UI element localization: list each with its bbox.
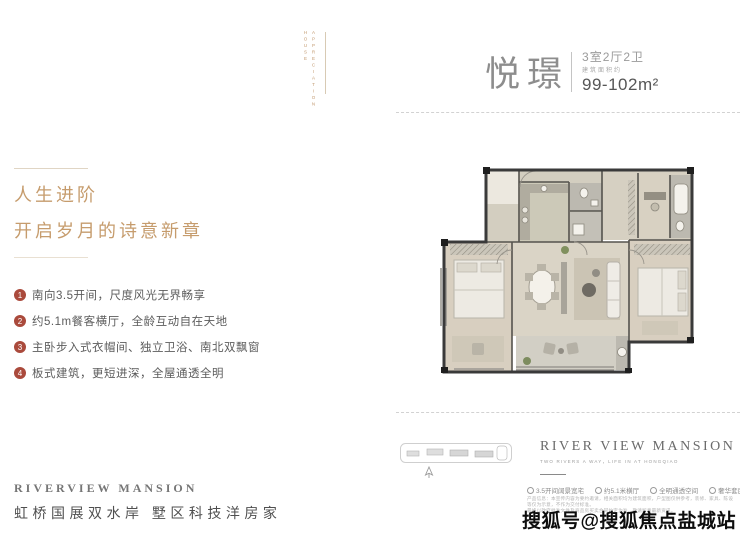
brand-slogan-cn: 虹桥国展双水岸 墅区科技洋房家 (14, 503, 281, 523)
unit-area: 99-102m² (582, 76, 659, 93)
feature-number-badge: 1 (14, 289, 26, 301)
brand-underline (540, 474, 566, 475)
legend-item: 奢华套房主卧 (709, 485, 740, 495)
legend-item: 全明通透空间 (650, 485, 698, 495)
legend-circle-icon (650, 487, 657, 494)
legend-label: 奢华套房主卧 (718, 485, 740, 495)
dashed-separator-top (396, 112, 740, 113)
poster-page: HOUSE APPRECIATION 悦璟 3室2厅2卫 建筑面积约 99-10… (0, 0, 740, 542)
brand-block-right: RIVER VIEW MANSION TWO RIVERS A WAY，LIFE… (540, 439, 735, 475)
floor-plan-svg (424, 140, 724, 402)
legend-circle-icon (595, 487, 602, 494)
legend-label: 全明通透空间 (659, 485, 698, 495)
legend-circle-icon (709, 487, 716, 494)
feature-item: 2 约5.1m餐客横厅，全龄互动自在天地 (14, 314, 260, 328)
feature-item: 3 主卧步入式衣帽间、独立卫浴、南北双飘窗 (14, 340, 260, 354)
selling-points-legend: 3.5开间阔景宽宅 约5.1米横厅 全明通透空间 奢华套房主卧 (527, 485, 740, 495)
intro-bottom-rule (14, 257, 88, 258)
dashed-separator-bottom (396, 412, 740, 413)
watermark-text: 搜狐号@搜狐焦点盐城站 (522, 506, 736, 533)
ornament-text-2: APPRECIATION (311, 30, 316, 96)
ornament-divider-line (325, 32, 326, 94)
feature-text: 南向3.5开间，尺度风光无界畅享 (32, 287, 206, 303)
feature-number-badge: 2 (14, 315, 26, 327)
feature-text: 板式建筑，更短进深，全屋通透全明 (32, 365, 224, 381)
header-divider (571, 52, 572, 92)
area-prefix: 建筑面积约 (582, 68, 659, 74)
brand-name-en-left: RIVERVIEW MANSION (14, 481, 281, 496)
unit-specs: 3室2厅2卫 建筑面积约 99-102m² (582, 51, 659, 93)
legend-label: 约5.1米横厅 (604, 485, 639, 495)
site-plan-icon (400, 443, 512, 463)
legend-item: 3.5开间阔景宽宅 (527, 485, 584, 495)
intro-line-1: 人生进阶 (14, 181, 203, 207)
unit-header: 悦璟 3室2厅2卫 建筑面积约 99-102m² (485, 46, 659, 97)
site-plan-box (400, 443, 512, 468)
feature-item: 4 板式建筑，更短进深，全屋通透全明 (14, 366, 260, 380)
legend-label: 3.5开间阔景宽宅 (536, 485, 584, 495)
feature-number-badge: 3 (14, 341, 26, 353)
feature-list: 1 南向3.5开间，尺度风光无界畅享 2 约5.1m餐客横厅，全龄互动自在天地 … (14, 288, 260, 392)
unit-type: 3室2厅2卫 (582, 51, 659, 63)
legend-circle-icon (527, 487, 534, 494)
brand-block-left: RIVERVIEW MANSION 虹桥国展双水岸 墅区科技洋房家 (14, 481, 281, 523)
ornament-text-1: HOUSE (303, 30, 308, 96)
brand-tagline: TWO RIVERS A WAY，LIFE IN AT HONGQIAO (540, 459, 735, 465)
floor-plan (424, 140, 724, 407)
compass-icon (424, 466, 434, 484)
feature-number-badge: 4 (14, 367, 26, 379)
legend-item: 约5.1米横厅 (595, 485, 639, 495)
brand-name-en-right: RIVER VIEW MANSION (540, 439, 735, 455)
feature-text: 主卧步入式衣帽间、独立卫浴、南北双飘窗 (32, 339, 260, 355)
vertical-ornament: HOUSE APPRECIATION (303, 30, 326, 96)
intro-block: 人生进阶 开启岁月的诗意新章 (14, 168, 203, 258)
unit-name: 悦璟 (485, 46, 569, 97)
intro-line-2: 开启岁月的诗意新章 (14, 217, 203, 243)
intro-top-rule (14, 168, 88, 169)
feature-text: 约5.1m餐客横厅，全龄互动自在天地 (32, 313, 228, 329)
feature-item: 1 南向3.5开间，尺度风光无界畅享 (14, 288, 260, 302)
